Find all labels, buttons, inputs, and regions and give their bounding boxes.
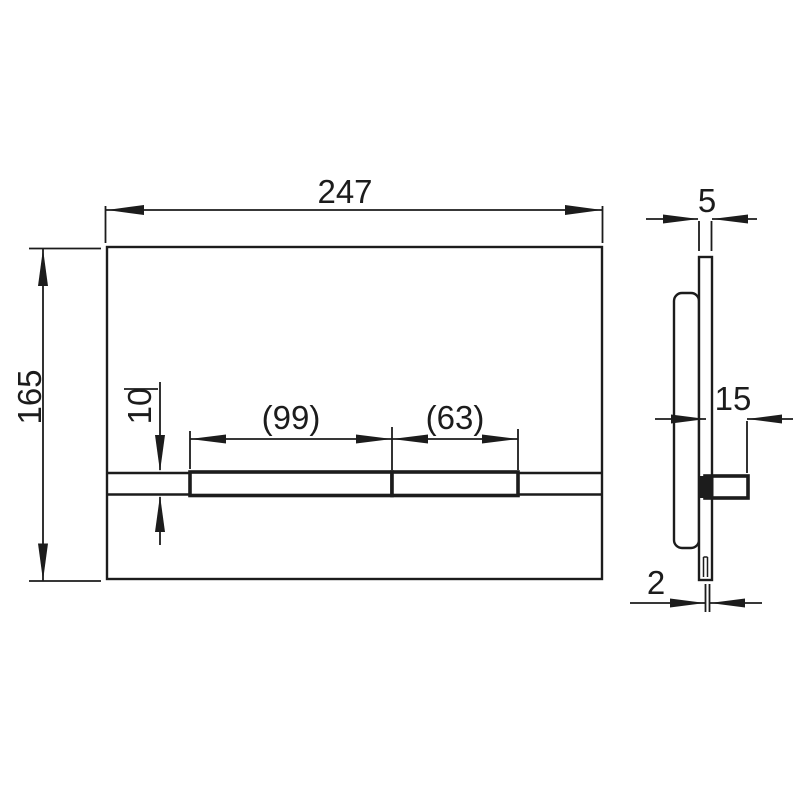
large-flush-button xyxy=(190,472,392,496)
dimension-height-165: 165 xyxy=(11,249,101,582)
small-flush-button xyxy=(392,472,518,496)
dimension-thickness-5: 5 xyxy=(646,182,757,251)
dimension-label-button-projection: 15 xyxy=(715,380,752,417)
plate-outline xyxy=(107,247,602,579)
arrowhead-right-icon xyxy=(670,599,705,608)
flush-plate-technical-drawing: 247 165 10 (99) (63) xyxy=(0,0,800,800)
front-view xyxy=(107,247,602,579)
button-stem-section xyxy=(700,476,714,498)
dimension-label-small-button: (63) xyxy=(426,399,485,436)
dimension-label-height: 165 xyxy=(11,369,48,424)
dimension-label-width: 247 xyxy=(317,173,372,210)
arrowhead-left-icon xyxy=(712,215,748,224)
dimension-label-edge-thickness: 2 xyxy=(647,564,665,601)
dimension-edge-2: 2 xyxy=(630,564,762,612)
arrowhead-right-icon xyxy=(663,215,699,224)
drawing-canvas: 247 165 10 (99) (63) xyxy=(0,0,800,800)
dimension-label-plate-thickness: 5 xyxy=(698,182,716,219)
arrowhead-left-icon xyxy=(747,415,782,424)
arrowhead-up-icon xyxy=(38,249,48,286)
dimension-label-large-button: (99) xyxy=(262,399,321,436)
dimension-width-247: 247 xyxy=(106,173,603,243)
arrowhead-right-icon xyxy=(565,205,602,215)
dimension-label-strip-height: 10 xyxy=(121,388,158,425)
arrowhead-down-icon xyxy=(38,544,48,581)
arrowhead-left-icon xyxy=(107,205,144,215)
arrowhead-left-icon xyxy=(710,599,745,608)
